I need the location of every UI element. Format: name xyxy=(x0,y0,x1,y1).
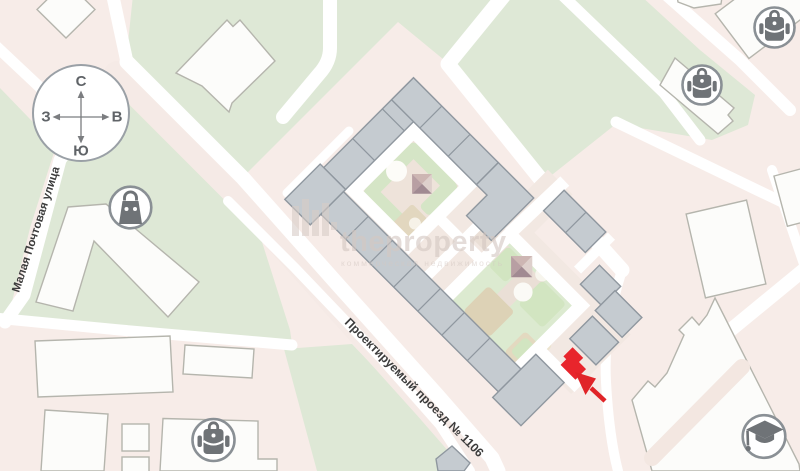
svg-text:С: С xyxy=(76,73,87,90)
svg-text:Ю: Ю xyxy=(73,143,88,160)
svg-text:коммерческая недвижимость: коммерческая недвижимость xyxy=(341,258,504,268)
svg-text:theproperty: theproperty xyxy=(340,226,507,258)
svg-text:З: З xyxy=(41,109,50,126)
svg-text:В: В xyxy=(112,109,123,126)
